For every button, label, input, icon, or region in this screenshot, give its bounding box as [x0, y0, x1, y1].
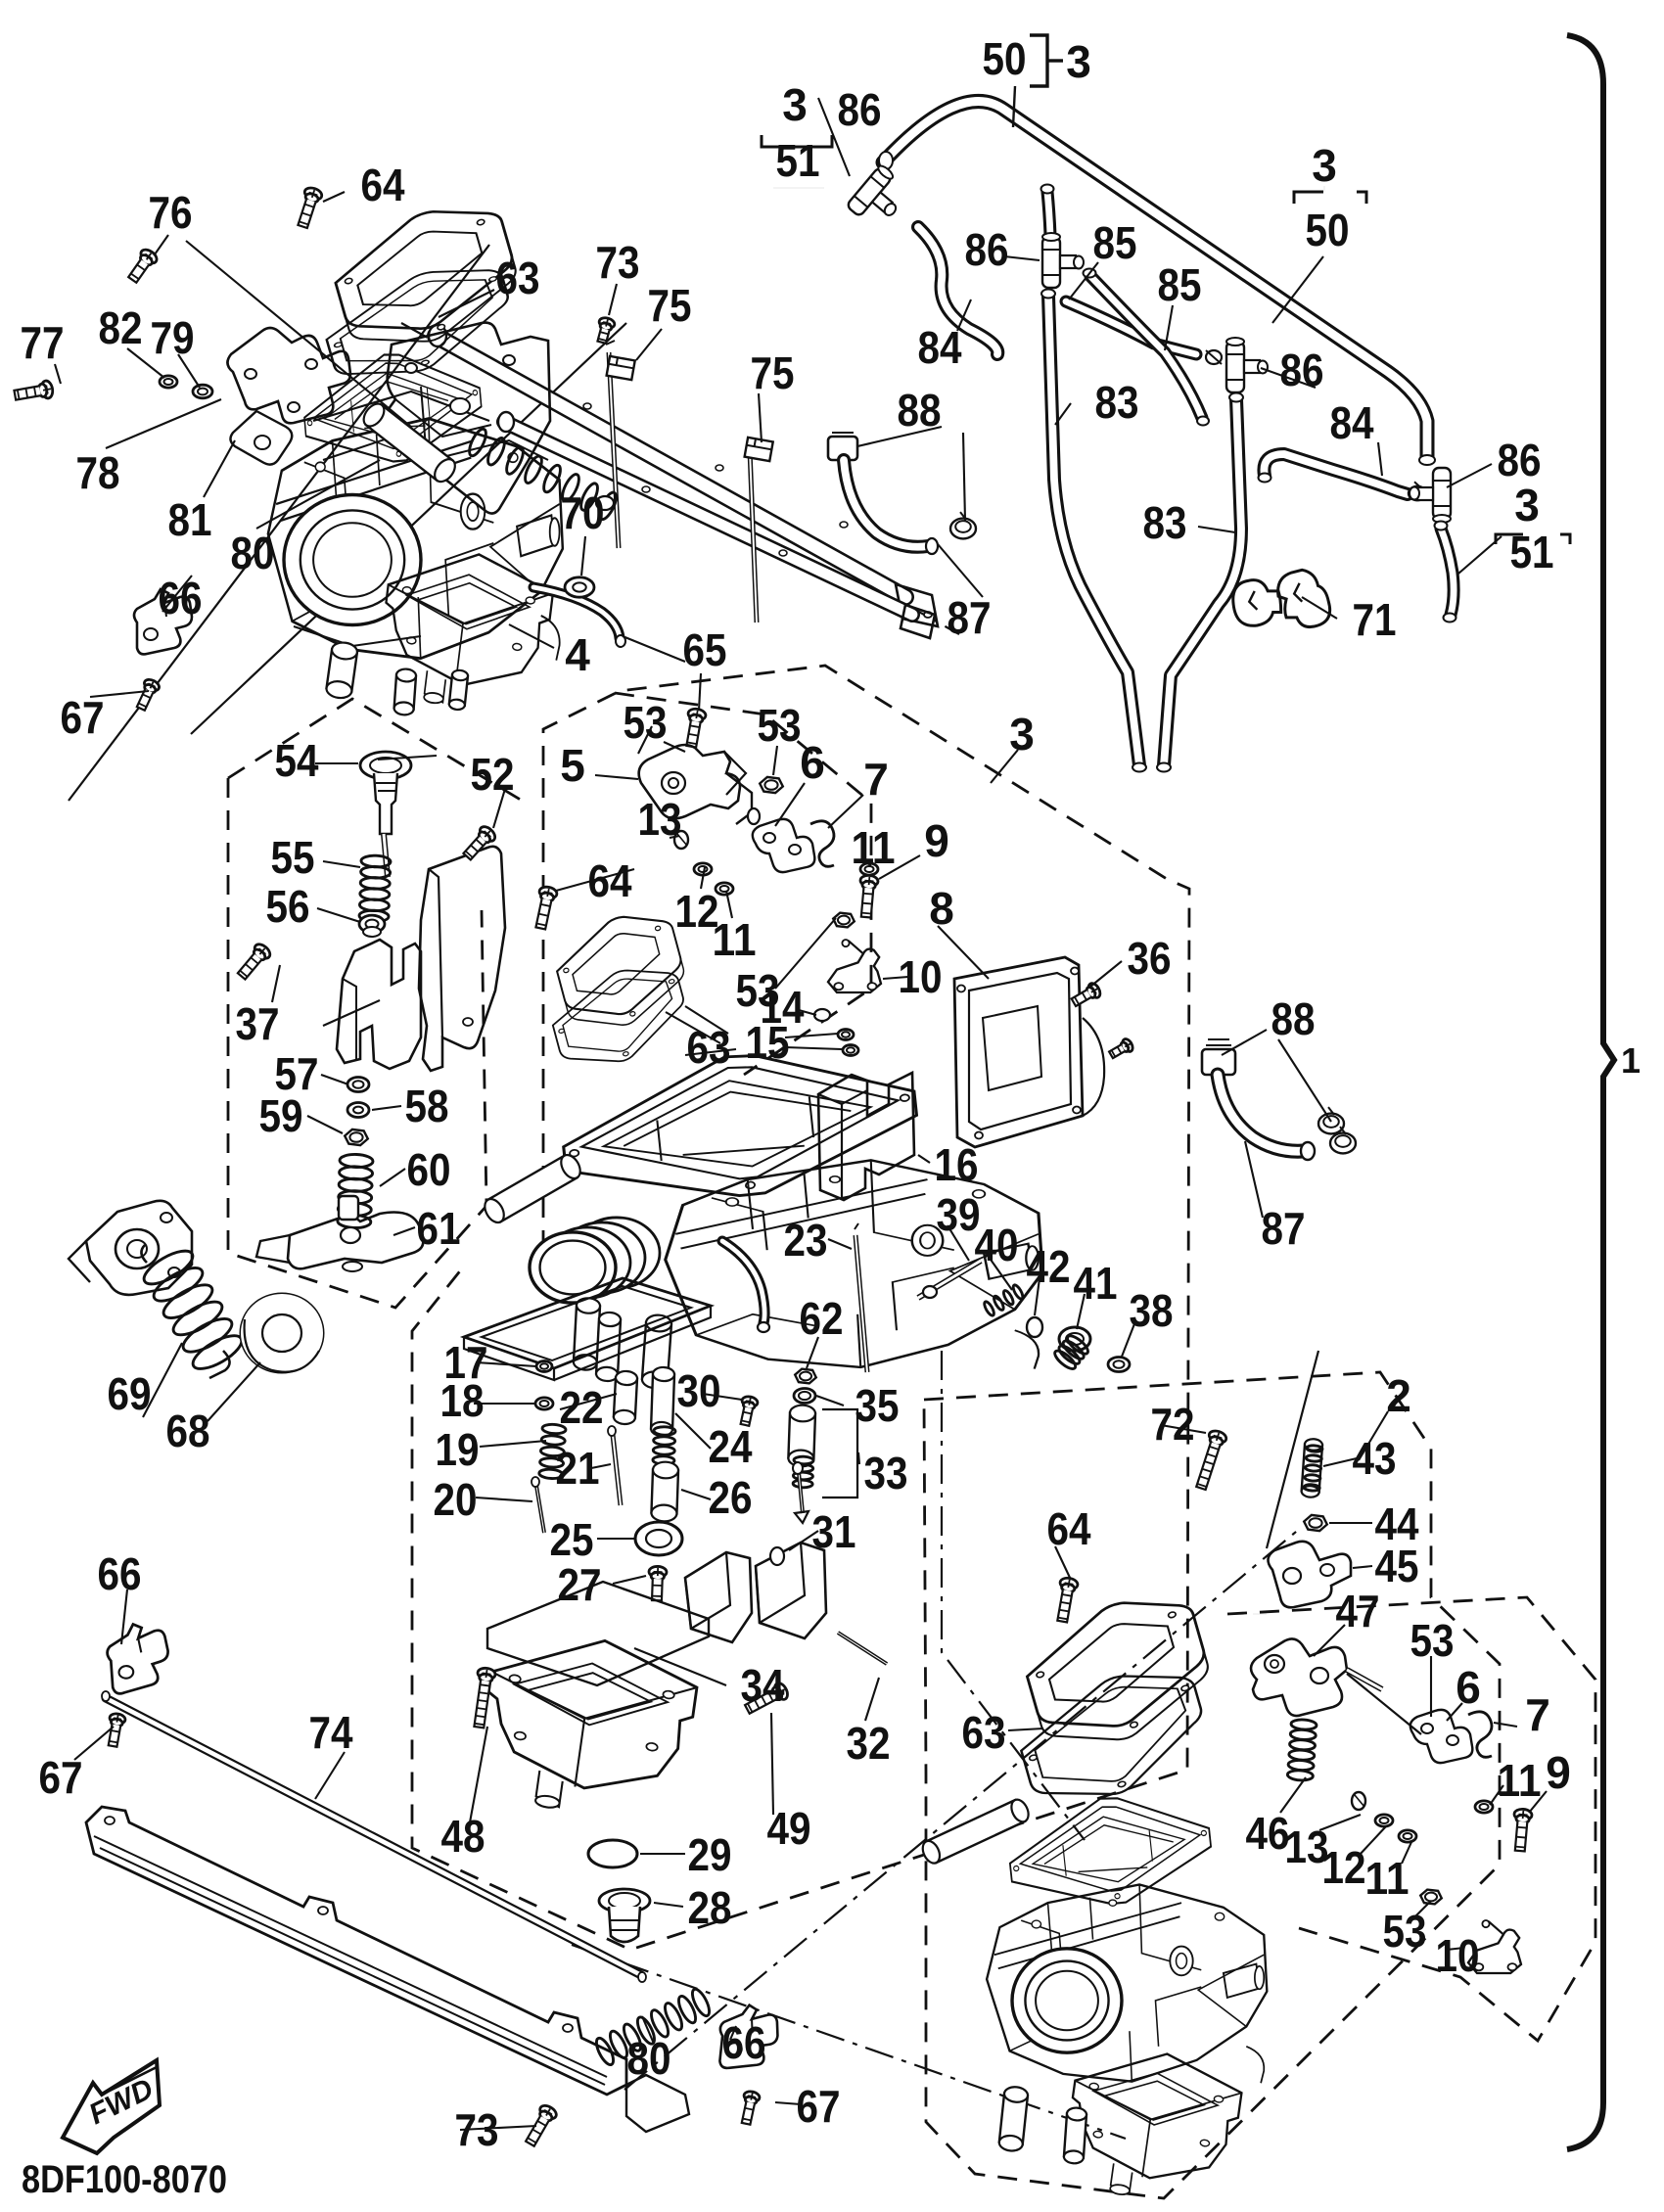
svg-text:3: 3	[1312, 140, 1337, 191]
svg-text:36: 36	[1128, 933, 1172, 984]
svg-text:63: 63	[962, 1707, 1006, 1758]
svg-text:53: 53	[758, 700, 802, 751]
svg-text:35: 35	[855, 1380, 900, 1431]
svg-text:49: 49	[767, 1803, 811, 1854]
svg-text:19: 19	[436, 1424, 480, 1475]
svg-text:26: 26	[709, 1472, 753, 1523]
svg-text:4: 4	[565, 629, 590, 680]
svg-text:16: 16	[935, 1139, 979, 1190]
svg-text:62: 62	[800, 1293, 844, 1344]
svg-text:63: 63	[496, 253, 540, 303]
svg-text:10: 10	[899, 951, 943, 1002]
svg-text:52: 52	[471, 749, 515, 800]
svg-text:34: 34	[741, 1660, 785, 1711]
svg-text:64: 64	[588, 855, 632, 906]
svg-text:82: 82	[99, 302, 143, 353]
svg-text:73: 73	[455, 2104, 499, 2155]
svg-text:10: 10	[1436, 1930, 1480, 1981]
svg-text:65: 65	[683, 624, 727, 675]
svg-text:85: 85	[1158, 259, 1202, 310]
svg-text:3: 3	[782, 79, 808, 130]
svg-text:69: 69	[108, 1368, 152, 1419]
svg-text:53: 53	[624, 697, 668, 748]
svg-text:23: 23	[784, 1215, 828, 1266]
svg-text:37: 37	[236, 998, 280, 1049]
svg-text:3: 3	[1514, 480, 1540, 530]
svg-text:15: 15	[746, 1017, 790, 1068]
svg-text:61: 61	[417, 1203, 461, 1254]
svg-text:80: 80	[627, 2033, 671, 2084]
svg-text:25: 25	[550, 1514, 594, 1565]
svg-text:27: 27	[558, 1559, 602, 1610]
svg-text:22: 22	[560, 1382, 604, 1433]
svg-text:40: 40	[975, 1220, 1019, 1270]
svg-text:63: 63	[687, 1022, 731, 1073]
svg-text:76: 76	[149, 187, 193, 238]
svg-text:13: 13	[638, 794, 682, 845]
svg-text:60: 60	[407, 1144, 451, 1195]
svg-text:66: 66	[98, 1548, 142, 1599]
svg-text:31: 31	[812, 1506, 856, 1557]
svg-text:56: 56	[266, 881, 310, 932]
svg-text:86: 86	[965, 224, 1009, 275]
svg-text:6: 6	[1456, 1662, 1481, 1713]
svg-text:12: 12	[1322, 1842, 1366, 1893]
svg-text:38: 38	[1130, 1285, 1174, 1336]
svg-text:50: 50	[1306, 205, 1350, 255]
svg-text:8: 8	[929, 883, 954, 934]
svg-text:54: 54	[275, 735, 319, 786]
svg-text:67: 67	[39, 1752, 83, 1803]
svg-text:47: 47	[1336, 1586, 1380, 1636]
svg-text:50: 50	[983, 33, 1027, 84]
svg-text:20: 20	[434, 1474, 478, 1525]
svg-text:83: 83	[1095, 377, 1139, 428]
svg-text:59: 59	[259, 1090, 303, 1141]
svg-text:28: 28	[688, 1882, 732, 1933]
svg-text:86: 86	[1498, 435, 1542, 485]
svg-text:11: 11	[1365, 1853, 1410, 1904]
svg-text:67: 67	[61, 692, 105, 743]
svg-text:45: 45	[1375, 1541, 1419, 1591]
svg-text:83: 83	[1143, 497, 1187, 548]
svg-text:88: 88	[898, 385, 942, 436]
svg-text:64: 64	[1047, 1503, 1091, 1554]
svg-text:88: 88	[1271, 993, 1316, 1044]
svg-text:66: 66	[159, 573, 203, 623]
svg-text:75: 75	[648, 280, 692, 331]
svg-text:53: 53	[1383, 1906, 1427, 1957]
svg-text:55: 55	[271, 832, 315, 883]
svg-text:18: 18	[440, 1375, 485, 1426]
svg-text:46: 46	[1246, 1808, 1290, 1859]
svg-text:81: 81	[168, 494, 212, 545]
svg-text:51: 51	[1510, 527, 1554, 577]
svg-text:3: 3	[1009, 709, 1035, 760]
svg-text:41: 41	[1074, 1258, 1118, 1309]
svg-text:84: 84	[918, 322, 962, 373]
svg-text:70: 70	[561, 487, 605, 538]
svg-text:7: 7	[863, 754, 889, 805]
svg-text:6: 6	[800, 737, 825, 788]
svg-text:42: 42	[1027, 1241, 1071, 1292]
svg-text:29: 29	[688, 1829, 732, 1880]
svg-text:77: 77	[21, 317, 65, 368]
svg-text:86: 86	[1280, 345, 1324, 395]
svg-text:87: 87	[948, 592, 992, 643]
svg-text:80: 80	[231, 528, 275, 578]
svg-text:9: 9	[924, 815, 949, 866]
svg-text:87: 87	[1262, 1203, 1306, 1254]
svg-text:51: 51	[776, 135, 820, 186]
svg-text:73: 73	[596, 237, 640, 288]
svg-text:11: 11	[1498, 1755, 1542, 1806]
svg-text:58: 58	[405, 1081, 449, 1131]
svg-text:67: 67	[797, 2081, 841, 2132]
svg-text:30: 30	[677, 1365, 721, 1416]
svg-text:48: 48	[441, 1811, 485, 1862]
svg-text:5: 5	[560, 740, 585, 791]
svg-text:53: 53	[1410, 1615, 1455, 1666]
svg-text:66: 66	[722, 2017, 766, 2068]
svg-text:64: 64	[361, 160, 405, 210]
svg-text:7: 7	[1525, 1689, 1550, 1740]
svg-text:1: 1	[1621, 1040, 1641, 1081]
svg-text:3: 3	[1066, 36, 1091, 87]
svg-text:74: 74	[309, 1707, 353, 1758]
svg-text:9: 9	[1546, 1747, 1571, 1798]
svg-text:75: 75	[751, 347, 795, 398]
svg-text:8DF100-8070: 8DF100-8070	[22, 2158, 227, 2201]
svg-text:86: 86	[838, 84, 882, 135]
svg-text:11: 11	[852, 822, 896, 873]
svg-text:85: 85	[1093, 217, 1137, 268]
svg-text:78: 78	[76, 447, 120, 498]
svg-text:33: 33	[864, 1448, 908, 1498]
svg-text:72: 72	[1151, 1399, 1195, 1450]
svg-text:79: 79	[151, 312, 195, 363]
svg-text:2: 2	[1386, 1370, 1411, 1421]
svg-text:84: 84	[1330, 397, 1374, 448]
svg-text:24: 24	[709, 1421, 753, 1472]
svg-text:71: 71	[1353, 594, 1397, 645]
svg-text:32: 32	[847, 1718, 891, 1769]
svg-text:11: 11	[713, 914, 757, 965]
svg-text:21: 21	[556, 1443, 600, 1494]
svg-text:68: 68	[166, 1406, 210, 1456]
